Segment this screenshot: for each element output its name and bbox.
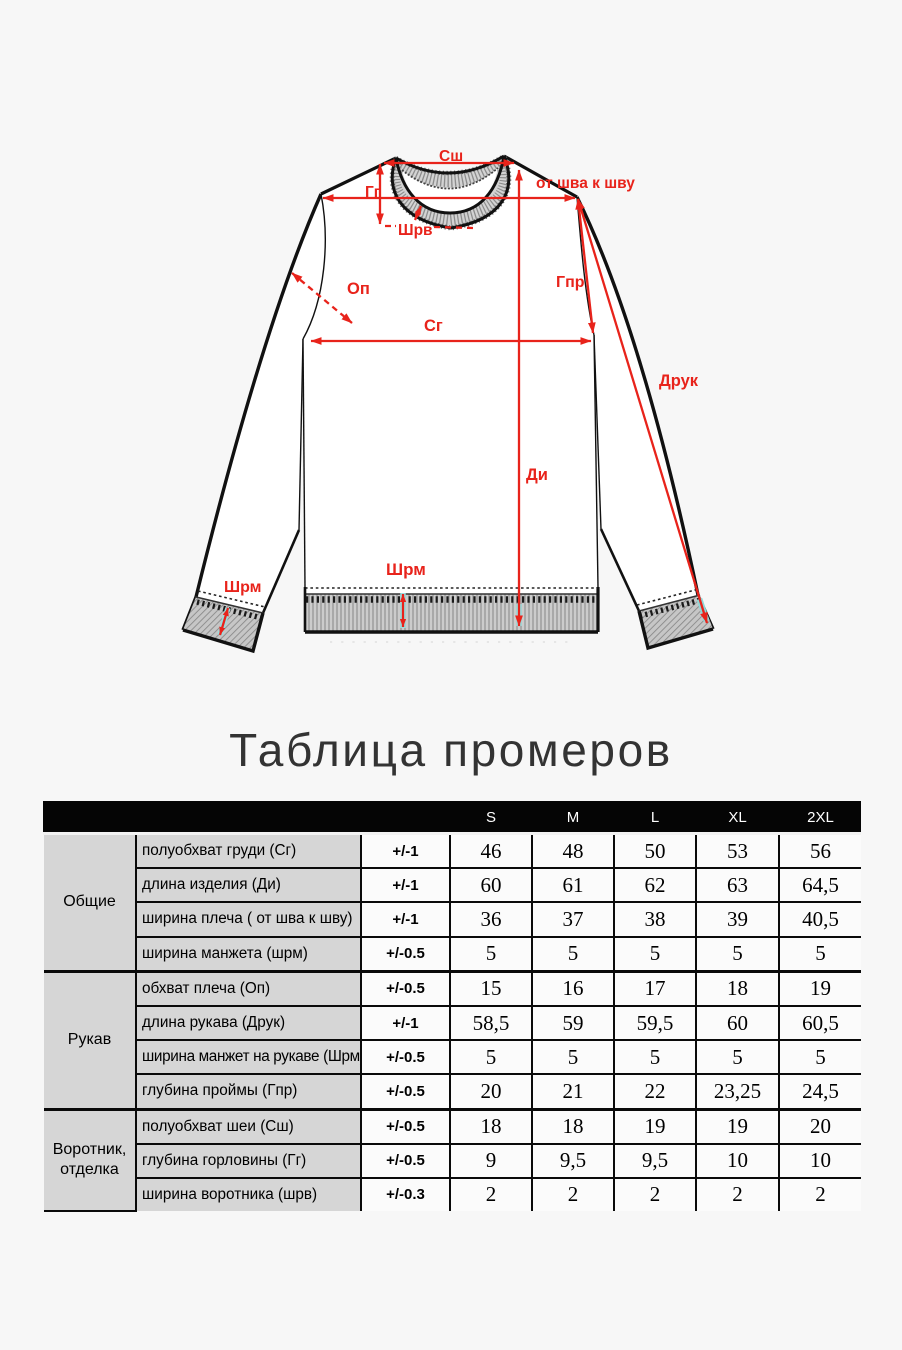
svg-text:Шрм: Шрм: [386, 560, 426, 579]
svg-text:Оп: Оп: [347, 280, 370, 298]
svg-text:Гпр: Гпр: [556, 274, 585, 291]
svg-text:Сг: Сг: [424, 317, 443, 335]
svg-text:Шрв: Шрв: [398, 222, 433, 239]
svg-text:от шва к шву: от шва к шву: [536, 175, 635, 192]
svg-text:Друк: Друк: [659, 372, 699, 390]
svg-text:Сш: Сш: [439, 148, 463, 165]
svg-text:Шрм: Шрм: [224, 579, 261, 596]
svg-text:Гг: Гг: [365, 184, 381, 201]
svg-text:Ди: Ди: [526, 466, 548, 484]
